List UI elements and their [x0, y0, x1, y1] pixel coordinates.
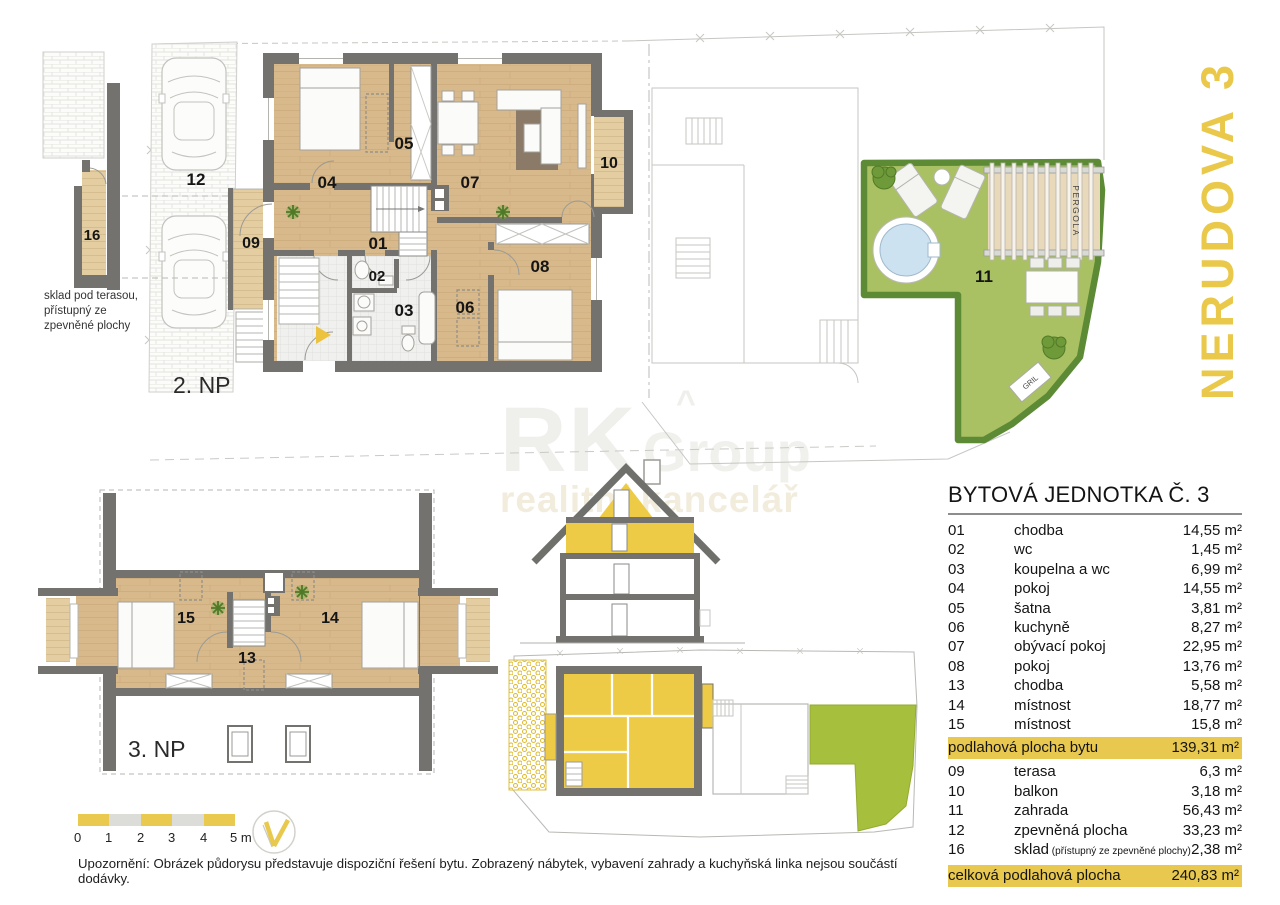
row-number: 15	[948, 715, 988, 734]
table-row: 06kuchyně8,27 m²	[948, 618, 1242, 637]
row-number: 10	[948, 782, 988, 801]
room-label-12: 12	[187, 170, 206, 189]
row-area: 56,43 m²	[1183, 801, 1242, 820]
row-area: 15,8 m²	[1191, 715, 1242, 734]
row-number: 04	[948, 579, 988, 598]
row-name: pokoj	[988, 579, 1183, 598]
room-label-15: 15	[177, 610, 195, 627]
scale-bar-segments	[78, 814, 235, 826]
room-label-07: 07	[461, 173, 480, 192]
row-area: 6,3 m²	[1199, 762, 1242, 781]
table-row: 10balkon3,18 m²	[948, 782, 1242, 801]
row-area: 33,23 m²	[1183, 821, 1242, 840]
room-label-09: 09	[242, 235, 260, 252]
row-number: 07	[948, 637, 988, 656]
total-label: celková podlahová plocha	[948, 865, 1171, 886]
agency-logo-icon	[250, 808, 298, 856]
site-locator-plan	[509, 647, 917, 837]
balcony-10: 10	[594, 110, 633, 214]
room-label-16: 16	[84, 227, 101, 244]
row-number: 09	[948, 762, 988, 781]
unit-area-table: BYTOVÁ JEDNOTKA Č. 3 01chodba14,55 m²02w…	[948, 482, 1242, 890]
row-name: chodba	[988, 676, 1191, 695]
row-number: 05	[948, 599, 988, 618]
row-number: 02	[948, 540, 988, 559]
row-area: 3,81 m²	[1191, 599, 1242, 618]
row-area: 6,99 m²	[1191, 560, 1242, 579]
row-number: 06	[948, 618, 988, 637]
room-label-13: 13	[238, 650, 256, 667]
skylights	[228, 726, 310, 762]
row-number: 03	[948, 560, 988, 579]
row-name: zahrada	[988, 801, 1183, 820]
garden-dining-set	[1026, 258, 1080, 316]
pergola: PERGOLA	[984, 163, 1104, 260]
floor3-label: 3. NP	[128, 736, 186, 762]
table-row: 14místnost18,77 m²	[948, 696, 1242, 715]
svg-text:přístupný ze: přístupný ze	[44, 305, 107, 317]
room-label-08: 08	[531, 257, 550, 276]
table-row: 09terasa6,3 m²	[948, 762, 1242, 781]
row-area: 1,45 m²	[1191, 540, 1242, 559]
building-section	[520, 460, 745, 643]
room-label-04: 04	[318, 173, 337, 192]
row-name: místnost	[988, 715, 1191, 734]
row-number: 14	[948, 696, 988, 715]
toilet	[402, 335, 414, 351]
row-area: 22,95 m²	[1183, 637, 1242, 656]
car-top-view	[159, 216, 229, 328]
table-row: 05šatna3,81 m²	[948, 599, 1242, 618]
wardrobe	[496, 224, 589, 244]
table-row: 02wc1,45 m²	[948, 540, 1242, 559]
row-number: 08	[948, 657, 988, 676]
table-row: 01chodba14,55 m²	[948, 521, 1242, 540]
row-name: šatna	[988, 599, 1191, 618]
row-name: wc	[988, 540, 1191, 559]
row-note: (přístupný ze zpevněné plochy)	[1049, 846, 1191, 857]
row-area: 14,55 m²	[1183, 521, 1242, 540]
table-row: 13chodba5,58 m²	[948, 676, 1242, 695]
exterior-stairs	[236, 312, 266, 362]
room-label-03: 03	[395, 301, 414, 320]
subtotal-row: podlahová plocha bytu 139,31 m²	[948, 737, 1242, 759]
row-number: 11	[948, 801, 988, 820]
floorplan-3np: 15 13 14 3. NP	[38, 490, 498, 774]
table-row: 16sklad (přístupný ze zpevněné plochy)2,…	[948, 840, 1242, 861]
row-area: 13,76 m²	[1183, 657, 1242, 676]
room-label-06: 06	[456, 298, 475, 317]
interior-rows: 01chodba14,55 m²02wc1,45 m²03koupelna a …	[948, 521, 1242, 734]
scale-bar-labels: 0 1 2 3 4 5 m	[78, 830, 278, 846]
floorplan-2np: 01 02 03 04 05 06 07 08	[240, 53, 602, 372]
svg-text:sklad pod terasou,: sklad pod terasou,	[44, 290, 138, 302]
room-label-10: 10	[600, 155, 618, 172]
row-number: 13	[948, 676, 988, 695]
row-name: sklad (přístupný ze zpevněné plochy)	[988, 840, 1191, 861]
garden-11: PERGOLA GRIL 11	[864, 162, 1104, 440]
row-area: 18,77 m²	[1183, 696, 1242, 715]
table-row: 12zpevněná plocha33,23 m²	[948, 821, 1242, 840]
row-name: pokoj	[988, 657, 1183, 676]
row-name: kuchyně	[988, 618, 1191, 637]
room-label-14: 14	[321, 610, 339, 627]
pergola-label: PERGOLA	[1071, 185, 1081, 237]
site-neighbor	[713, 700, 808, 794]
row-area: 14,55 m²	[1183, 579, 1242, 598]
room-label-01: 01	[369, 234, 388, 253]
row-name: terasa	[988, 762, 1199, 781]
storage-note: sklad pod terasou, přístupný ze zpevněné…	[44, 290, 138, 332]
table-row: 07obývací pokoj22,95 m²	[948, 637, 1242, 656]
row-name: obývací pokoj	[988, 637, 1183, 656]
row-number: 12	[948, 821, 988, 840]
site-unit-highlight	[545, 666, 713, 796]
bathtub	[419, 292, 435, 344]
row-area: 5,58 m²	[1191, 676, 1242, 695]
room-label-11: 11	[975, 267, 993, 286]
row-name: místnost	[988, 696, 1183, 715]
subtotal-area: 139,31 m²	[1171, 737, 1239, 758]
table-row: 15místnost15,8 m²	[948, 715, 1242, 734]
table-row: 03koupelna a wc6,99 m²	[948, 560, 1242, 579]
toilet	[355, 261, 369, 279]
table-row: 11zahrada56,43 m²	[948, 801, 1242, 820]
row-name: koupelna a wc	[988, 560, 1191, 579]
exterior-rows: 09terasa6,3 m²10balkon3,18 m²11zahrada56…	[948, 762, 1242, 861]
svg-text:zpevněné plochy: zpevněné plochy	[44, 320, 131, 332]
disclaimer-text: Upozornění: Obrázek půdorysu představuje…	[78, 856, 938, 886]
table-row: 04pokoj14,55 m²	[948, 579, 1242, 598]
row-area: 8,27 m²	[1191, 618, 1242, 637]
room-label-05: 05	[395, 134, 414, 153]
row-number: 01	[948, 521, 988, 540]
floor2-label: 2. NP	[173, 372, 231, 398]
row-area: 2,38 m²	[1191, 840, 1242, 859]
subtotal-label: podlahová plocha bytu	[948, 737, 1171, 758]
car-top-view	[159, 58, 229, 170]
table-row: 08pokoj13,76 m²	[948, 657, 1242, 676]
row-name: chodba	[988, 521, 1183, 540]
neighbor-building-outline	[652, 88, 858, 383]
row-number: 16	[948, 840, 988, 859]
scale-bar: 0 1 2 3 4 5 m	[78, 814, 278, 854]
room-label-02: 02	[369, 268, 386, 285]
project-title-vertical: NERUDOVA 3	[1192, 28, 1244, 400]
stairs-3np	[233, 600, 265, 646]
paved-area-12: 12	[149, 42, 237, 392]
row-area: 3,18 m²	[1191, 782, 1242, 801]
total-row: celková podlahová plocha 240,83 m²	[948, 865, 1242, 887]
table-title: BYTOVÁ JEDNOTKA Č. 3	[948, 482, 1242, 515]
row-name: balkon	[988, 782, 1191, 801]
pool	[873, 217, 940, 283]
total-area: 240,83 m²	[1171, 865, 1239, 886]
row-name: zpevněná plocha	[988, 821, 1183, 840]
floorplan-sheet: RKGroup ^ realitní kancelář	[0, 0, 1280, 905]
site-paved-area	[509, 660, 546, 790]
